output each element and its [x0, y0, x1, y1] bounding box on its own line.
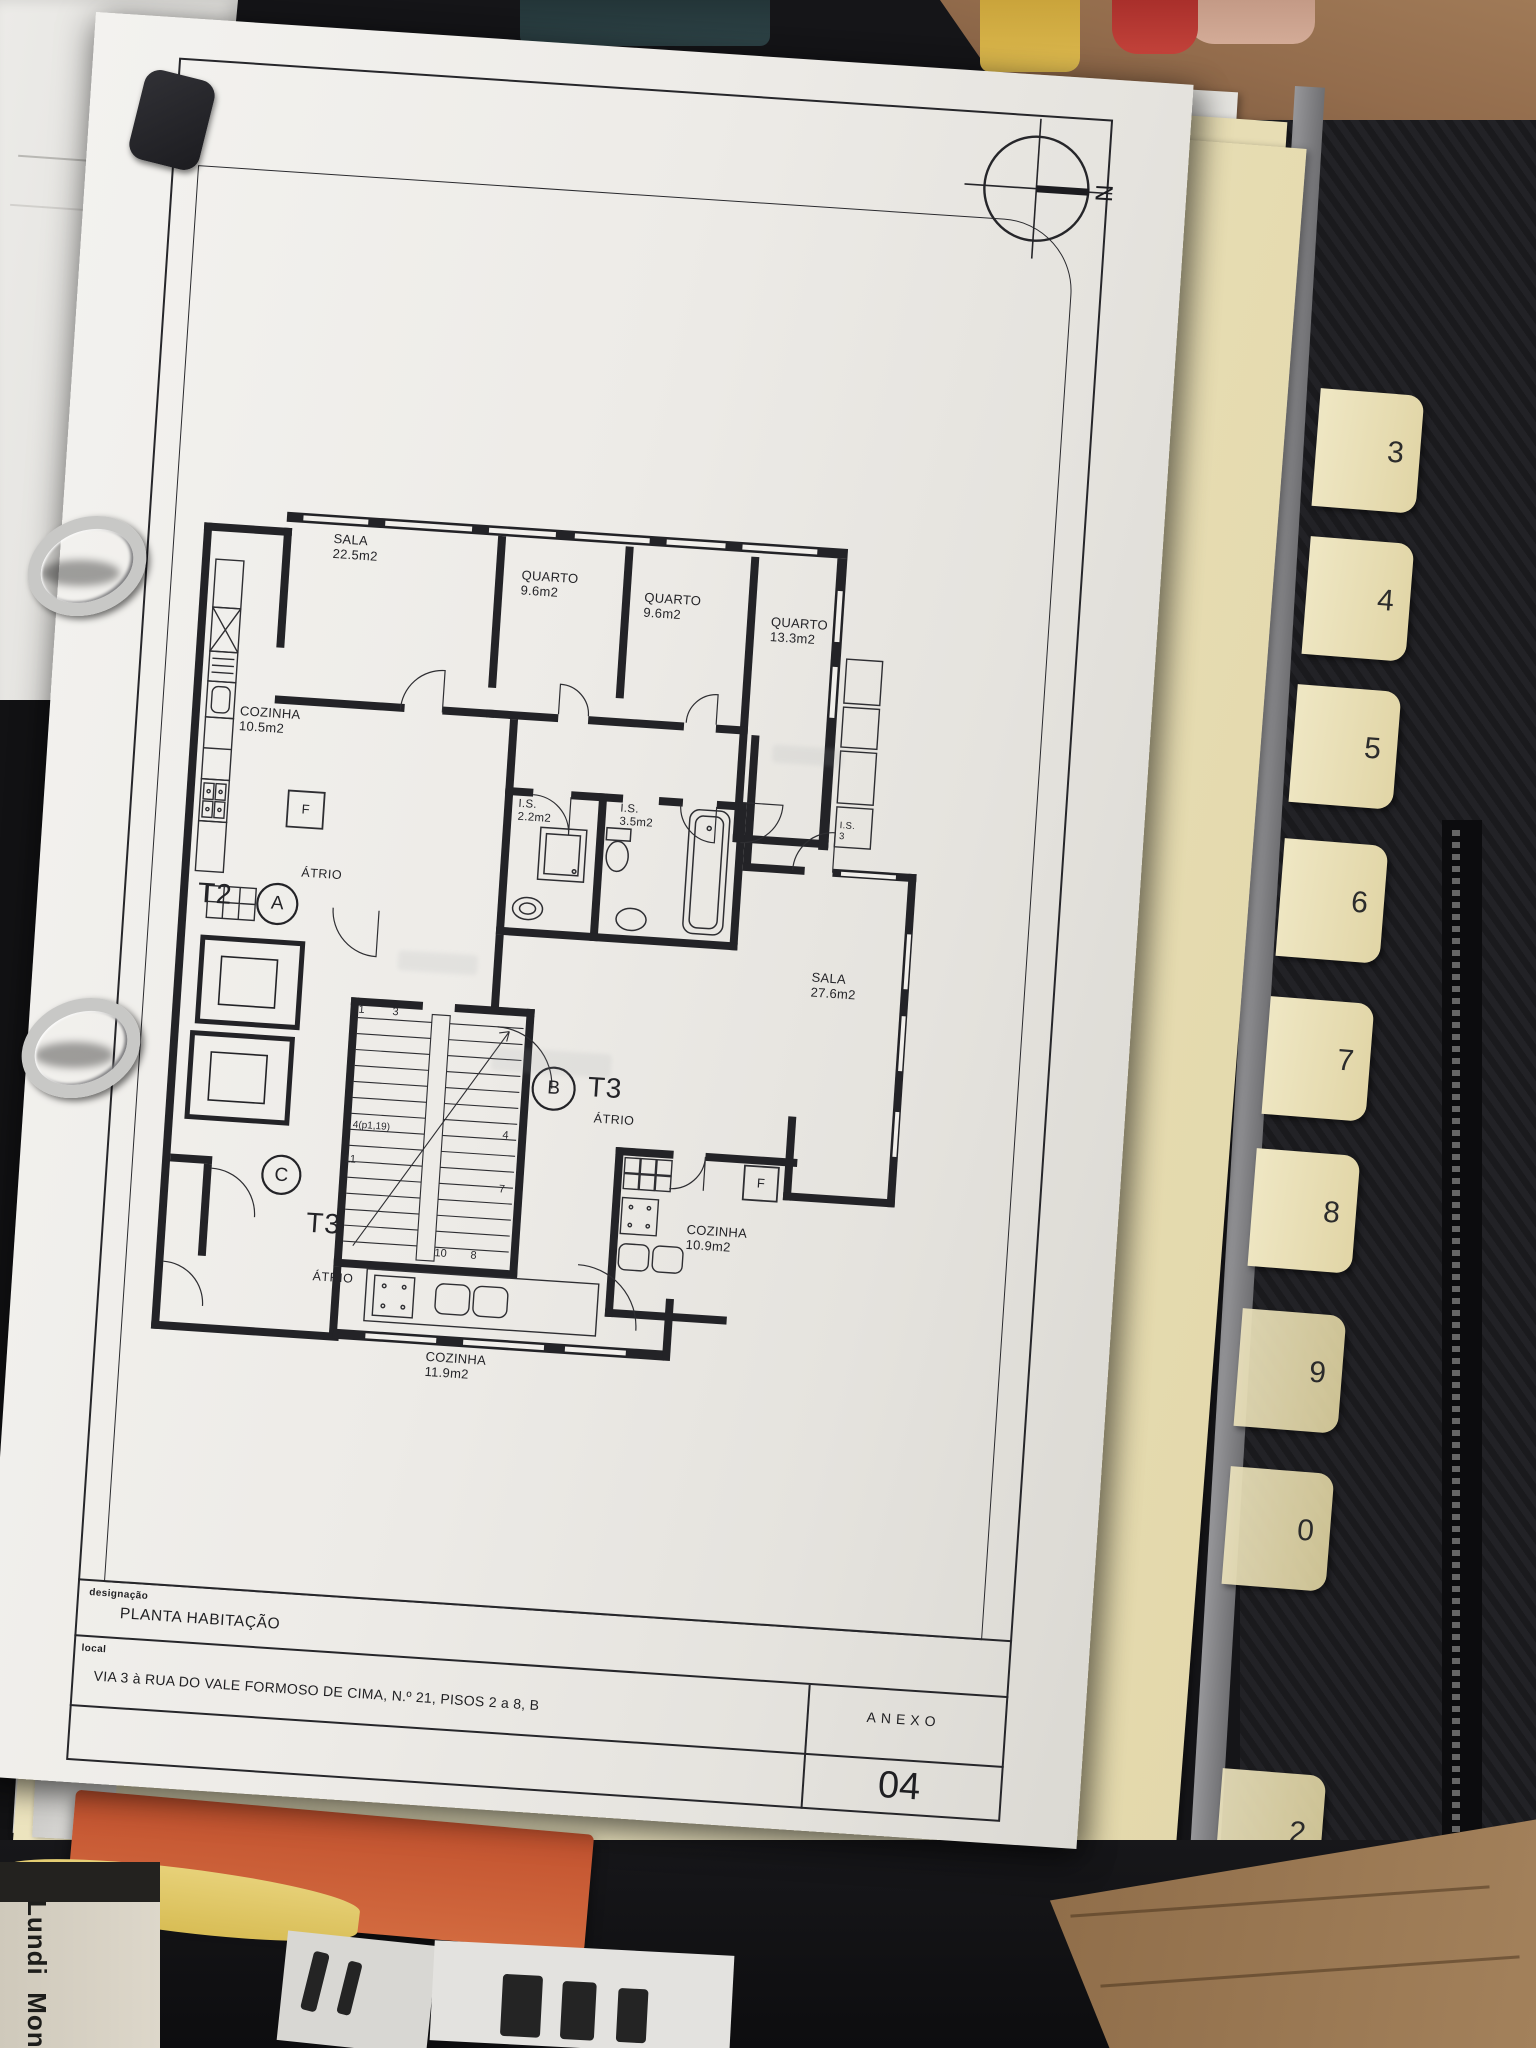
north-compass: N — [880, 95, 1122, 300]
floor-plan-page: N — [0, 12, 1194, 1849]
stair-number: 10 — [434, 1247, 447, 1260]
room-label-sala-b: SALA27.6m2 — [810, 970, 857, 1003]
room-label-is-1: I.S.2.2m2 — [517, 798, 552, 826]
stair-number: 8 — [470, 1250, 477, 1262]
word-lundi: Lundi — [22, 1900, 52, 1976]
room-label-quarto-2: QUARTO9.6m2 — [643, 590, 702, 624]
atrio-c-label: ÁTRIO — [312, 1269, 354, 1286]
box-weekday-text: Lundi Montag Lunes — [0, 1900, 54, 2048]
word-montag: Montag — [22, 1992, 52, 2048]
print-mark — [300, 1950, 330, 2012]
tab-number: 7 — [1336, 1044, 1355, 1079]
plan-walls — [131, 465, 949, 1413]
binder-tab-8[interactable]: 8 — [1248, 1148, 1361, 1274]
print-mark — [560, 1981, 597, 2041]
finger — [1185, 0, 1315, 44]
local-label: local — [81, 1643, 106, 1656]
stair-number: 11 — [344, 1153, 356, 1166]
room-label-cozinha-b: COZINHA10.9m2 — [685, 1222, 747, 1256]
north-arrow — [1036, 189, 1089, 193]
unit-t3b-code: T3 — [587, 1071, 624, 1105]
north-label: N — [1089, 184, 1117, 203]
tab-number: 5 — [1363, 732, 1382, 767]
atrio-b-label: ÁTRIO — [593, 1111, 635, 1128]
book-cover-bottom — [430, 1940, 735, 2048]
room-label-sala-a: SALA22.5m2 — [332, 531, 379, 564]
atrio-a-label: ÁTRIO — [301, 866, 343, 883]
binder-tab-6[interactable]: 6 — [1276, 838, 1389, 964]
print-mark — [336, 1960, 363, 2016]
unit-t3c-code: T3 — [305, 1207, 342, 1241]
teal-object — [520, 0, 770, 46]
binder-tab-7[interactable]: 7 — [1262, 996, 1375, 1122]
tab-number: 8 — [1322, 1196, 1341, 1231]
binder-tab-0[interactable]: 0 — [1222, 1466, 1335, 1592]
binder-tab-4[interactable]: 4 — [1302, 536, 1415, 662]
floor-plan-drawing: SALA22.5m2 QUARTO9.6m2 QUARTO9.6m2 QUART… — [131, 465, 949, 1413]
room-label-is-edge: I.S.3 — [839, 821, 856, 843]
unit-t2-code: T2 — [197, 877, 234, 911]
binder-tab-9[interactable]: 9 — [1234, 1308, 1347, 1434]
stair-number: 1 — [358, 1004, 365, 1016]
print-mark — [500, 1974, 543, 2038]
fridge-label-a: F — [287, 800, 324, 817]
room-label-quarto-3: QUARTO13.3m2 — [770, 614, 829, 648]
stair-number: 4 — [502, 1129, 509, 1141]
photo-of-binder-floor-plan: 3 4 5 6 7 8 9 0 2 Lundi Montag Lunes — [0, 0, 1536, 2048]
stair-number: 3 — [392, 1006, 399, 1018]
beige-box-top-face — [0, 1862, 160, 1902]
stair-number: 4(p1,19) — [352, 1119, 390, 1132]
unit-c-ref: C — [269, 1164, 294, 1188]
unit-a-ref: A — [265, 892, 290, 916]
red-fingernail — [1112, 0, 1198, 54]
print-mark — [616, 1988, 649, 2043]
unit-b-ref: B — [541, 1077, 566, 1101]
room-label-cozinha-c: COZINHA11.9m2 — [424, 1349, 486, 1383]
tab-number: 9 — [1308, 1356, 1327, 1391]
yellow-object — [980, 0, 1080, 72]
tab-number: 0 — [1296, 1514, 1315, 1549]
binder-tab-3[interactable]: 3 — [1312, 388, 1425, 514]
room-label-cozinha-a: COZINHA10.5m2 — [239, 703, 301, 737]
tab-number: 3 — [1386, 436, 1405, 471]
tab-number: 4 — [1376, 584, 1395, 619]
small-paper-bottom — [277, 1930, 438, 2048]
stair-number: 7 — [498, 1183, 505, 1195]
tab-number: 6 — [1350, 886, 1369, 921]
binder-tab-5[interactable]: 5 — [1289, 684, 1402, 810]
fridge-label-b: F — [743, 1175, 778, 1192]
room-label-is-2: I.S.3.5m2 — [619, 803, 654, 831]
room-label-quarto-1: QUARTO9.6m2 — [520, 567, 579, 601]
